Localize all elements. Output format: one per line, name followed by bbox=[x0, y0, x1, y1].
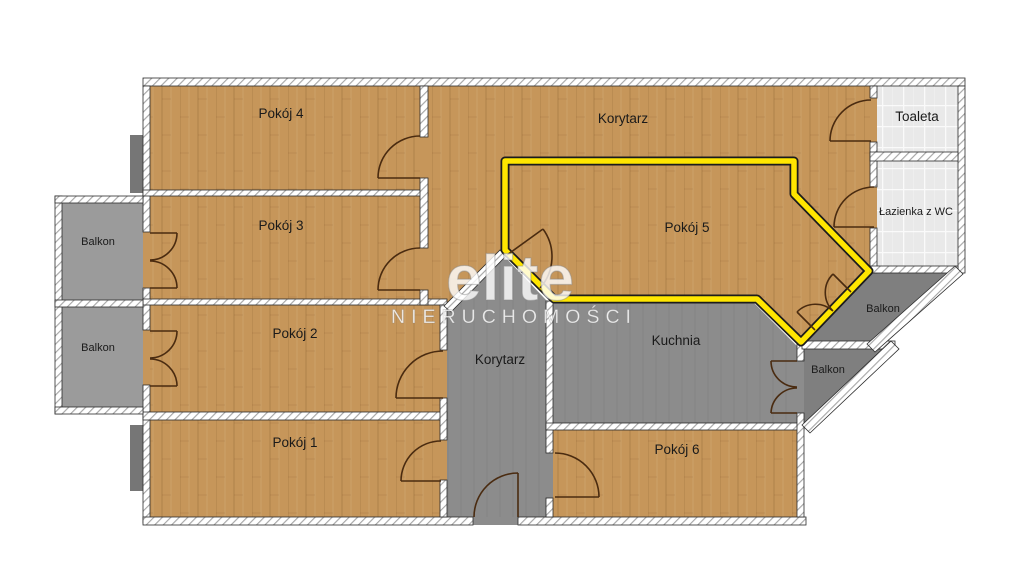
wall-balkon-left-middle bbox=[55, 300, 143, 307]
room-balkon-left-upper bbox=[62, 203, 143, 300]
wall-left bbox=[143, 385, 150, 523]
floor-plan-canvas: Pokój 4 Pokój 3 Pokój 2 Pokój 1 Korytarz… bbox=[0, 0, 1024, 585]
wall-toaleta-lazienka-divider bbox=[870, 152, 958, 161]
room-pokoj-4 bbox=[150, 86, 420, 190]
watermark-subtitle: NIERUCHOMOŚCI bbox=[391, 304, 637, 328]
floor-plan: Pokój 4 Pokój 3 Pokój 2 Pokój 1 Korytarz… bbox=[0, 0, 1024, 585]
wall-lazienka-bottom bbox=[870, 266, 958, 273]
exterior-wall-stub-top bbox=[130, 135, 144, 193]
label-pokoj-5: Pokój 5 bbox=[664, 220, 709, 235]
wall-pokoj2-1-right bbox=[440, 398, 447, 440]
wall-toaleta-lazienka-left bbox=[870, 142, 877, 187]
wall-korytarz-pokoj6 bbox=[546, 498, 553, 517]
room-pokoj-3 bbox=[150, 196, 420, 299]
exterior-wall-stub-bottom bbox=[130, 425, 144, 491]
label-balkon-right-upper: Balkon bbox=[866, 303, 900, 315]
wall-pokoj6-right bbox=[797, 413, 804, 517]
watermark-brand: elite bbox=[446, 242, 574, 314]
wall-bottom bbox=[518, 517, 806, 525]
wall-divider-pokoj2-1 bbox=[143, 412, 447, 420]
label-korytarz-lower: Korytarz bbox=[475, 352, 526, 367]
wall-pokoj4-right bbox=[420, 86, 428, 137]
wall-left bbox=[143, 288, 150, 330]
label-pokoj-4: Pokój 4 bbox=[258, 106, 304, 121]
label-kuchnia: Kuchnia bbox=[652, 333, 701, 348]
wall-divider-pokoj4-3 bbox=[143, 190, 428, 196]
label-balkon-right-lower: Balkon bbox=[811, 364, 845, 376]
wall-left bbox=[143, 86, 150, 232]
label-pokoj-2: Pokój 2 bbox=[272, 326, 317, 341]
label-balkon-left-upper: Balkon bbox=[81, 236, 115, 248]
label-pokoj-3: Pokój 3 bbox=[258, 218, 303, 233]
wall-pokoj1-right bbox=[440, 480, 447, 517]
wall-balkon-left-bottom bbox=[55, 407, 143, 414]
label-pokoj-6: Pokój 6 bbox=[654, 442, 699, 457]
wall-bottom bbox=[143, 517, 473, 525]
wall-divider-pokoj3-2 bbox=[143, 299, 447, 305]
label-lazienka: Łazienka z WC bbox=[879, 206, 953, 218]
wall-right bbox=[958, 86, 965, 273]
label-toaleta: Toaleta bbox=[895, 109, 939, 124]
wall-balkon-left-top bbox=[55, 196, 143, 203]
wall-toaleta-left bbox=[870, 86, 877, 98]
label-balkon-left-lower: Balkon bbox=[81, 342, 115, 354]
room-balkon-left-lower bbox=[62, 307, 143, 407]
label-korytarz-top: Korytarz bbox=[598, 111, 649, 126]
wall-pokoj4-3-right bbox=[420, 178, 428, 248]
label-pokoj-1: Pokój 1 bbox=[272, 435, 317, 450]
wall-kuchnia-pokoj6 bbox=[546, 423, 804, 430]
wall-top bbox=[143, 78, 965, 86]
wall-pokoj3-right bbox=[420, 290, 428, 305]
